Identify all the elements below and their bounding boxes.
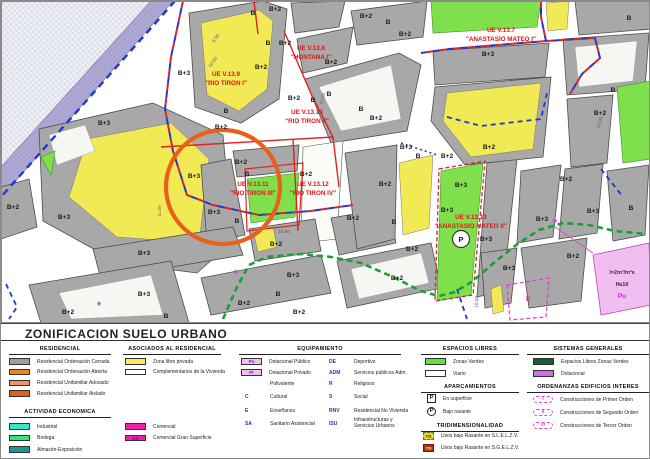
block-height-label: B <box>416 153 421 160</box>
legend-swatch <box>9 435 30 442</box>
block-height-label: B+2 <box>347 215 360 222</box>
block-height-label: B <box>266 40 271 47</box>
green-zone <box>617 81 650 163</box>
block-height-label: B+2 <box>300 171 313 178</box>
legend-item: Residencial Unifamiliar Adosado <box>9 378 109 387</box>
block-height-label: B+2 <box>567 253 580 260</box>
ue-unit-label: UE V.13.8 <box>297 45 326 52</box>
asterisk-marker: * <box>234 268 239 280</box>
legend-header-espacios: ESPACIOS LIBRES <box>421 346 519 355</box>
legend-item: EEnseñanza <box>245 406 295 415</box>
legend-item-label: Comercial <box>153 424 176 430</box>
legend-item-label: En superficie <box>443 396 472 402</box>
ordenanza-order-icon: I <box>533 396 553 403</box>
legend-swatch <box>125 423 146 430</box>
legend-item: PEn superficie <box>427 394 472 403</box>
legend-item-label: Construcciones de Tercer Orden <box>560 423 632 429</box>
residential-block <box>567 95 613 167</box>
legend-item: Complementarios de la Vivienda <box>125 368 225 377</box>
legend-item-label: Residencial Unifamiliar Adosado <box>37 380 109 386</box>
block-height-label: B <box>627 15 632 22</box>
legend-swatch-code: Pu <box>242 359 261 364</box>
legend-item-label: Social <box>354 394 368 400</box>
legend-code: S <box>329 394 347 400</box>
legend-item-label: Sanitario Asistencial <box>270 421 315 427</box>
legend-swatch-code: Pr <box>242 370 261 375</box>
legend-item: IConstrucciones de Primer Orden <box>533 395 633 404</box>
block-height-label: B+3 <box>441 207 454 214</box>
legend-item: Almacén-Exposición <box>9 445 82 454</box>
block-height-label: B+2 <box>279 40 292 47</box>
street-dimension-label: 11.00 <box>157 205 163 217</box>
legend-header-aparcamientos: APARCAMIENTOS <box>421 384 519 393</box>
block-height-label: B+2 <box>215 124 228 131</box>
legend-item-label: Industrial <box>37 424 57 430</box>
legend-item: Dotacional <box>533 369 585 378</box>
ue-unit-label: UE V.13.13 <box>455 214 487 221</box>
legend-swatch <box>9 358 30 365</box>
legend-code: DE <box>329 359 347 365</box>
legend-item: IIConstrucciones de Segundo Orden <box>533 408 638 417</box>
legend-item: Viario <box>425 369 466 378</box>
ue-unit-name-label: "RIO TIRON II" <box>285 118 329 125</box>
ue-unit-name-label: "RIO TIRON III" <box>230 190 276 197</box>
legend-header-equipamiento: EQUIPAMIENTO <box>239 346 401 355</box>
legend-item-label: Complementarios de la Vivienda <box>153 369 225 375</box>
legend-item-label: Residencial Ordenación Abierta <box>37 369 107 375</box>
ue-unit-label: UE V.13.11 <box>237 181 269 188</box>
legend-item-label: Polivalente <box>270 381 294 387</box>
block-height-label: B <box>327 91 332 98</box>
parking-square-icon: P <box>427 394 436 403</box>
block-height-label: B+3 <box>138 250 151 257</box>
ordenanza-order-icon: II <box>533 409 553 416</box>
dotacional-zone <box>593 243 650 315</box>
tr-code-icon: TR <box>423 432 434 440</box>
ue-unit-label: UE V.13.12 <box>297 181 329 188</box>
ue-unit-label: UE V.13.10 <box>291 109 323 116</box>
legend-swatch <box>9 369 30 376</box>
block-height-label: B <box>224 108 229 115</box>
legend-item: TRUsos bajo Rasante en S.G.E.L.Z.V. <box>423 444 519 453</box>
legend-item: GSComercial Gran Superficie <box>125 434 212 443</box>
private-open-zone <box>399 155 433 235</box>
ue-unit-name-label: "ANASTASIO MATEO I" <box>466 36 536 43</box>
ue-unit-name-label: "HONTANA I" <box>291 54 331 61</box>
legend-swatch-badge: GS <box>126 436 145 441</box>
block-height-label: B <box>251 10 256 17</box>
residential-block <box>517 165 561 243</box>
tr-code-icon: TR <box>423 444 434 452</box>
legend-item: PrDotacional Privado <box>241 368 311 377</box>
legend-item: Espacios Libres Zonas Verdes <box>533 357 629 366</box>
legend-swatch <box>533 370 554 377</box>
block-height-label: B+2 <box>235 159 248 166</box>
legend-item: PBajo rasante <box>427 407 471 416</box>
legend-item-label: Dotacional Público <box>269 359 310 365</box>
legend-item: RReligioso <box>329 379 375 388</box>
legend-item-label: Usos bajo Rasante en S.L.E.L.Z.V. <box>441 433 518 439</box>
legend-item: PuDotacional Público <box>241 357 310 366</box>
block-height-label: B+2 <box>399 31 412 38</box>
legend-item-label: Construcciones de Segundo Orden <box>560 410 638 416</box>
legend-item-label: Cultural <box>270 394 287 400</box>
legend-item-label: Religioso <box>354 381 375 387</box>
legend-code: SA <box>245 421 263 427</box>
asterisk-marker: * <box>553 217 558 229</box>
block-height-label: B+3 <box>58 214 71 221</box>
legend-swatch <box>425 358 446 365</box>
block-height-label: B+2 <box>270 241 283 248</box>
legend-header-asociados: ASOCIADOS AL RESIDENCIAL <box>123 346 221 355</box>
zone-annotation-label: II <box>526 294 530 303</box>
legend-swatch: Pr <box>241 369 262 376</box>
legend-item: Comercial <box>125 422 176 431</box>
alignment-blue-dashed <box>6 284 17 319</box>
block-height-label: B+2 <box>269 6 282 13</box>
legend-item-label: Infraestructuras y Servicios Urbanos <box>354 418 412 429</box>
block-height-label: B+3 <box>98 120 111 127</box>
legend-item-label: Usos bajo Rasante en S.G.E.L.Z.V. <box>441 445 519 451</box>
block-height-label: B+2 <box>560 176 573 183</box>
residential-block <box>607 165 649 241</box>
block-height-label: B+3 <box>287 272 300 279</box>
zone-annotation-label: I=2m³/m²s <box>609 270 634 276</box>
block-height-label: B+3 <box>480 236 493 243</box>
block-height-label: B <box>276 291 281 298</box>
legend-code: E <box>245 408 263 414</box>
ue-unit-name-label: "RIO TIRON IV" <box>290 190 336 197</box>
legend-item: Residencial Ordenación Abierta <box>9 368 107 377</box>
block-height-label: B+3 <box>482 51 495 58</box>
legend-item-label: Servicios públicos Adm. <box>354 370 407 376</box>
block-height-label: B+2 <box>391 275 404 282</box>
block-height-label: B <box>359 106 364 113</box>
block-height-label: B <box>311 97 316 104</box>
block-height-label: B+2 <box>441 153 454 160</box>
block-height-label: B+3 <box>208 209 221 216</box>
legend-item-label: Zonas Verdes <box>453 359 484 365</box>
block-height-label: B+2 <box>7 204 20 211</box>
zoning-map-canvas: BB+2BB+2B+3B+2B+2BBB+3B+2B+2BB+2B+2BBB+2… <box>1 1 650 323</box>
private-open-zone <box>546 1 569 31</box>
ue-unit-name-label: "ANASTASIO MATEO II" <box>435 223 507 230</box>
block-height-label: B+3 <box>536 216 549 223</box>
block-height-label: B+2 <box>288 95 301 102</box>
legend-swatch <box>125 369 146 376</box>
street-dimension-label: 10.00 <box>278 229 290 235</box>
legend-item-label: Residencial Ordenación Cerrada <box>37 359 110 365</box>
legend-swatch <box>9 380 30 387</box>
block-height-label: B+2 <box>255 64 268 71</box>
legend-item: ISUInfraestructuras y Servicios Urbanos <box>329 419 412 428</box>
zone-annotation-label: Pu <box>618 293 626 300</box>
block-height-label: B+3 <box>400 144 413 151</box>
ue-unit-name-label: "RIO TIRON I" <box>205 80 247 87</box>
legend-item: RNVResidencial No Vivienda <box>329 406 408 415</box>
legend-swatch <box>425 370 446 377</box>
legend-item: ADMServicios públicos Adm. <box>329 368 407 377</box>
legend-item: Polivalente <box>245 379 294 388</box>
block-height-label: B+3 <box>178 70 191 77</box>
block-height-label: B+3 <box>138 291 151 298</box>
legend-item: Residencial Ordenación Cerrada <box>9 357 110 366</box>
block-height-label: B+2 <box>293 309 306 316</box>
courtyard <box>575 41 637 87</box>
legend-item: Zonas Verdes <box>425 357 484 366</box>
legend-item-label: Construcciones de Primer Orden <box>560 397 633 403</box>
legend-item: Bodega <box>9 434 54 443</box>
legend-item: Zona libre privada <box>125 357 193 366</box>
legend-item: SSocial <box>329 393 368 402</box>
legend-swatch <box>9 390 30 397</box>
block-height-label: B+2 <box>62 309 75 316</box>
ue-unit-label: UE V.13.9 <box>212 71 241 78</box>
residential-block <box>201 255 331 315</box>
block-height-label: B+2 <box>370 115 383 122</box>
legend-item-label: Bodega <box>37 435 54 441</box>
block-height-label: B+3 <box>503 265 516 272</box>
legend-panel: ZONIFICACION SUELO URBANO RESIDENCIAL Re… <box>1 323 650 459</box>
legend-item: IIIConstrucciones de Tercer Orden <box>533 421 632 430</box>
block-height-label: B <box>611 87 616 94</box>
legend-code: C <box>245 394 263 400</box>
legend-item-label: Comercial Gran Superficie <box>153 435 212 441</box>
parking-circle-icon: P <box>427 407 436 416</box>
block-height-label: B <box>386 19 391 26</box>
residential-block <box>521 238 587 308</box>
legend-swatch: Pu <box>241 358 262 365</box>
legend-swatch <box>9 446 30 453</box>
legend-swatch <box>9 423 30 430</box>
zoning-plan-sheet: BB+2BB+2B+3B+2B+2BBB+3B+2B+2BB+2B+2BBB+2… <box>0 0 650 459</box>
legend-swatch <box>533 358 554 365</box>
legend-title-rule <box>1 340 650 341</box>
legend-item-label: Deportivo <box>354 359 375 365</box>
block-height-label: B <box>164 313 169 320</box>
block-height-label: B+2 <box>406 246 419 253</box>
block-height-label: B+2 <box>483 144 496 151</box>
block-height-label: B+3 <box>455 182 468 189</box>
legend-item-label: Residencial Unifamiliar Aislado <box>37 391 105 397</box>
legend-title: ZONIFICACION SUELO URBANO <box>25 327 227 341</box>
legend-code: RNV <box>329 408 347 414</box>
legend-code: ADM <box>329 370 347 376</box>
legend-item-label: Dotacional Privado <box>269 370 311 376</box>
legend-item-label: Dotacional <box>561 371 585 377</box>
legend-header-actividad: ACTIVIDAD ECONOMICA <box>9 409 111 418</box>
legend-swatch <box>125 358 146 365</box>
legend-item: CCultural <box>245 393 287 402</box>
zoning-map: BB+2BB+2B+3B+2B+2BBB+3B+2B+2BB+2B+2BBB+2… <box>1 1 650 323</box>
residential-block <box>291 1 345 33</box>
legend-item-label: Zona libre privada <box>153 359 193 365</box>
block-height-label: B <box>235 218 240 225</box>
legend-swatch: GS <box>125 435 146 442</box>
ordenanza-order-icon: III <box>533 422 553 429</box>
street-dimension-label: 10.00 <box>473 295 480 308</box>
block-height-label: B+2 <box>594 110 607 117</box>
block-height-label: B <box>392 219 397 226</box>
legend-item-label: Bajo rasante <box>443 409 471 415</box>
legend-header-sistemas: SISTEMAS GENERALES <box>527 346 649 355</box>
legend-item: TRUsos bajo Rasante en S.L.E.L.Z.V. <box>423 431 518 440</box>
block-height-label: B <box>629 205 634 212</box>
legend-item: Residencial Unifamiliar Aislado <box>9 389 105 398</box>
legend-code: ISU <box>329 421 347 427</box>
asterisk-marker: * <box>97 300 102 312</box>
legend-item: SASanitario Asistencial <box>245 420 315 429</box>
block-height-label: B <box>245 171 250 178</box>
legend-item-label: Enseñanza <box>270 408 295 414</box>
legend-item-label: Viario <box>453 371 466 377</box>
legend-item: Industrial <box>9 422 57 431</box>
legend-header-ordenanzas: ORDENANZAS EDIFICIOS INTERES <box>527 384 649 393</box>
block-height-label: B+2 <box>379 181 392 188</box>
legend-item: DEDeportivo <box>329 357 375 366</box>
block-height-label: B+2 <box>238 300 251 307</box>
zone-annotation-label: H≤10 <box>616 282 629 288</box>
legend-item-label: Residencial No Vivienda <box>354 408 408 414</box>
block-height-label: B+2 <box>360 13 373 20</box>
underground-parking-letter: P <box>458 235 463 244</box>
block-height-label: B+3 <box>188 173 201 180</box>
block-height-label: B+3 <box>587 208 600 215</box>
legend-item-label: Almacén-Exposición <box>37 447 82 453</box>
residential-block <box>575 1 650 35</box>
legend-code: R <box>329 381 347 387</box>
legend-item-label: Espacios Libres Zonas Verdes <box>561 359 629 365</box>
ue-unit-label: UE V.13.7 <box>487 27 516 34</box>
legend-header-residencial: RESIDENCIAL <box>9 346 111 355</box>
